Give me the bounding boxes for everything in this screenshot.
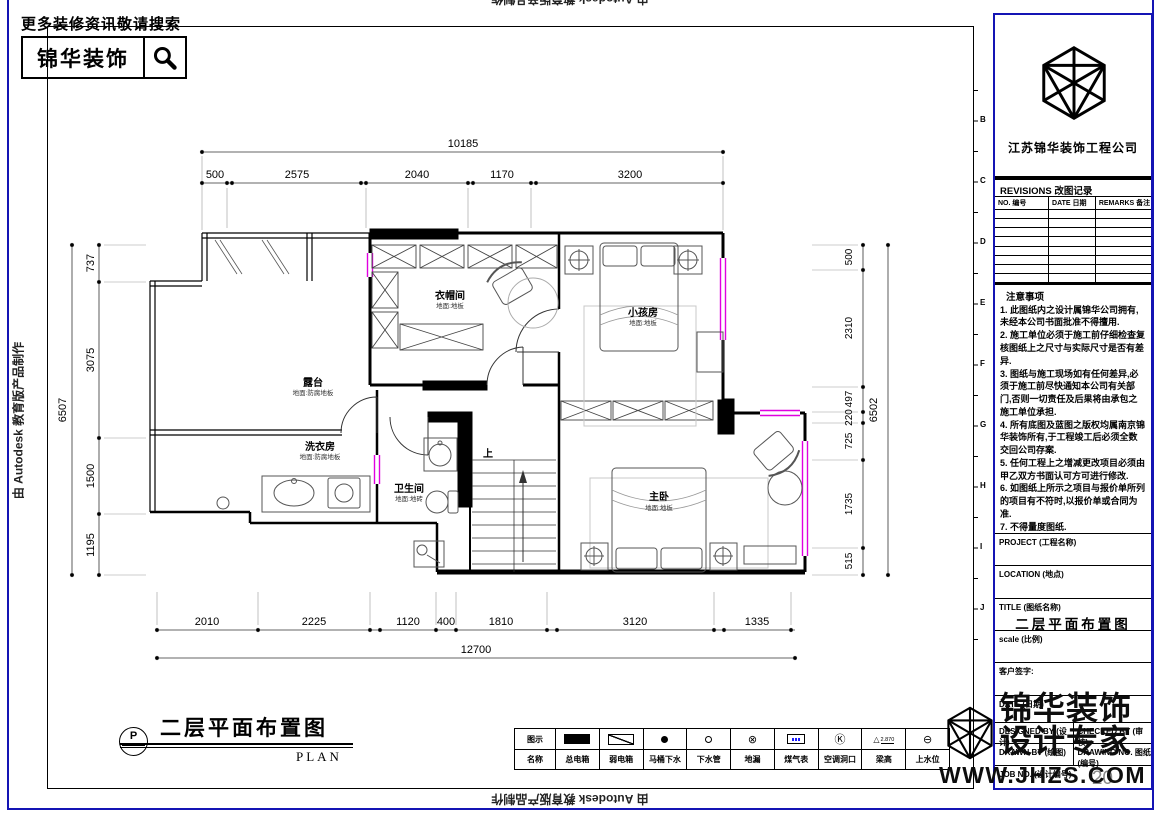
floor-drain-icon: ⊗ [730,729,774,749]
legend-icon-header: 图示 [515,729,555,749]
autodesk-credit-bottom: 由 Autodesk 教育版产品制作 [420,791,720,808]
note-item: 7. 不得量度图纸. [1000,521,1146,534]
ruler-letter: E [980,298,985,307]
rev-col-date: DATE 日期 [1048,197,1095,210]
watermark-line2: 设计专家 [1000,725,1132,758]
drawing-frame [47,26,974,789]
company-name: 江苏锦华装饰工程公司 [995,139,1151,156]
watermark-line1: 锦华装饰 [1000,692,1132,725]
plan-title-en: PLAN [296,749,342,765]
legend-label: 弱电箱 [599,749,643,769]
brand-label: 锦华装饰 [23,38,145,77]
ruler-letter: D [980,237,986,246]
watermark-url: WWW.JHZS.COM [939,762,1146,789]
notes-section: 注意事项 1. 此图纸内之设计属锦华公司拥有,未经本公司书面批准不得擅用. 2.… [995,285,1151,534]
ruler-letter: B [980,115,986,124]
brand-search-box: 锦华装饰 [21,36,187,79]
legend-label: 梁高 [861,749,905,769]
ruler-letter: G [980,420,986,429]
watermark-cube-logo [940,700,1000,766]
company-logo-area: 江苏锦华装饰工程公司 [995,15,1151,176]
beam-height-icon: △2.870 [861,729,905,749]
main-electric-box-icon [555,729,599,749]
notes-title: 注意事项 [1006,289,1146,303]
search-tagline: 更多装修资讯敬请搜索 [21,13,181,34]
ruler-letter: J [980,603,984,612]
ruler-ticks [973,90,978,640]
title-block: 江苏锦华装饰工程公司 REVISIONS 改图记录 NO. 编号 DATE 日期… [993,13,1153,790]
ruler-letter: H [980,481,986,490]
revisions-title: REVISIONS 改图记录 [995,180,1151,196]
company-cube-logo [1032,37,1116,129]
location-field: LOCATION (地点) [995,565,1151,598]
frame-ruler-strip: B C D E F G H I J [973,26,993,789]
drawing-sheet: { "banner": {"tagline": "更多装修资讯敬请搜索", "b… [0,0,1158,817]
note-item: 1. 此图纸内之设计属锦华公司拥有,未经本公司书面批准不得擅用. [1000,304,1146,330]
legend-label: 总电箱 [555,749,599,769]
plan-title-underline [120,743,353,748]
autodesk-credit-left: 由 Autodesk 教育版产品制作 [10,271,27,571]
rev-col-remarks: REMARKS 备注 [1095,197,1151,210]
ac-opening-icon: Ⓚ [818,729,862,749]
brand-watermark: 锦华装饰 设计专家 WWW.JHZS.COM [936,686,1157,802]
ruler-letter: I [980,542,982,551]
legend-name-header: 名称 [515,749,555,769]
drain-pipe-icon [686,729,730,749]
plan-marker-letter: P [130,730,137,742]
revisions-table: NO. 编号 DATE 日期 REMARKS 备注 [995,196,1151,283]
plan-title: 二层平面布置图 [160,712,328,742]
note-item: 3. 图纸与施工现场如有任何差异,必须于施工前尽快通知本公司有关部门,否则一切责… [1000,368,1146,419]
legend-label: 地漏 [730,749,774,769]
plan-marker: P [119,727,148,756]
note-item: 4. 所有底图及蓝图之版权均属南京锦华装饰所有,于工程竣工后必须全数交回公司存案… [1000,419,1146,457]
search-icon [145,38,185,77]
legend-label: 空调洞口 [818,749,862,769]
project-field: PROJECT (工程名称) [995,533,1151,565]
legend-label: 马桶下水 [643,749,687,769]
note-item: 5. 任何工程上之增减更改项目必须由甲乙双方书面认可方可进行修改. [1000,457,1146,483]
title-field: TITLE (图纸名称) 二层平面布置图 [995,598,1151,630]
gas-meter-icon [774,729,818,749]
weak-electric-box-icon [599,729,643,749]
ruler-letter: F [980,359,985,368]
legend-label: 煤气表 [774,749,818,769]
scale-field: scale (比例) [995,630,1151,662]
legend-table: 图示 ⊗ Ⓚ △2.870 ⊖ 名称 总电箱 弱电箱 马桶下水 下水管 地漏 煤… [514,728,950,770]
autodesk-credit-top: 由 Autodesk 教育版产品制作 [420,0,720,8]
toilet-drain-icon [643,729,687,749]
watermark-text: 锦华装饰 设计专家 [1000,692,1132,757]
note-item: 6. 如图纸上所示之项目与报价单所列的项目有不符时,以报价单或合同为准. [1000,482,1146,520]
rev-col-no: NO. 编号 [995,197,1048,210]
note-item: 2. 施工单位必须于施工前仔细检查复核图纸上之尺寸与实际尺寸是否有差异. [1000,329,1146,367]
ruler-letter: C [980,176,986,185]
legend-label: 下水管 [686,749,730,769]
